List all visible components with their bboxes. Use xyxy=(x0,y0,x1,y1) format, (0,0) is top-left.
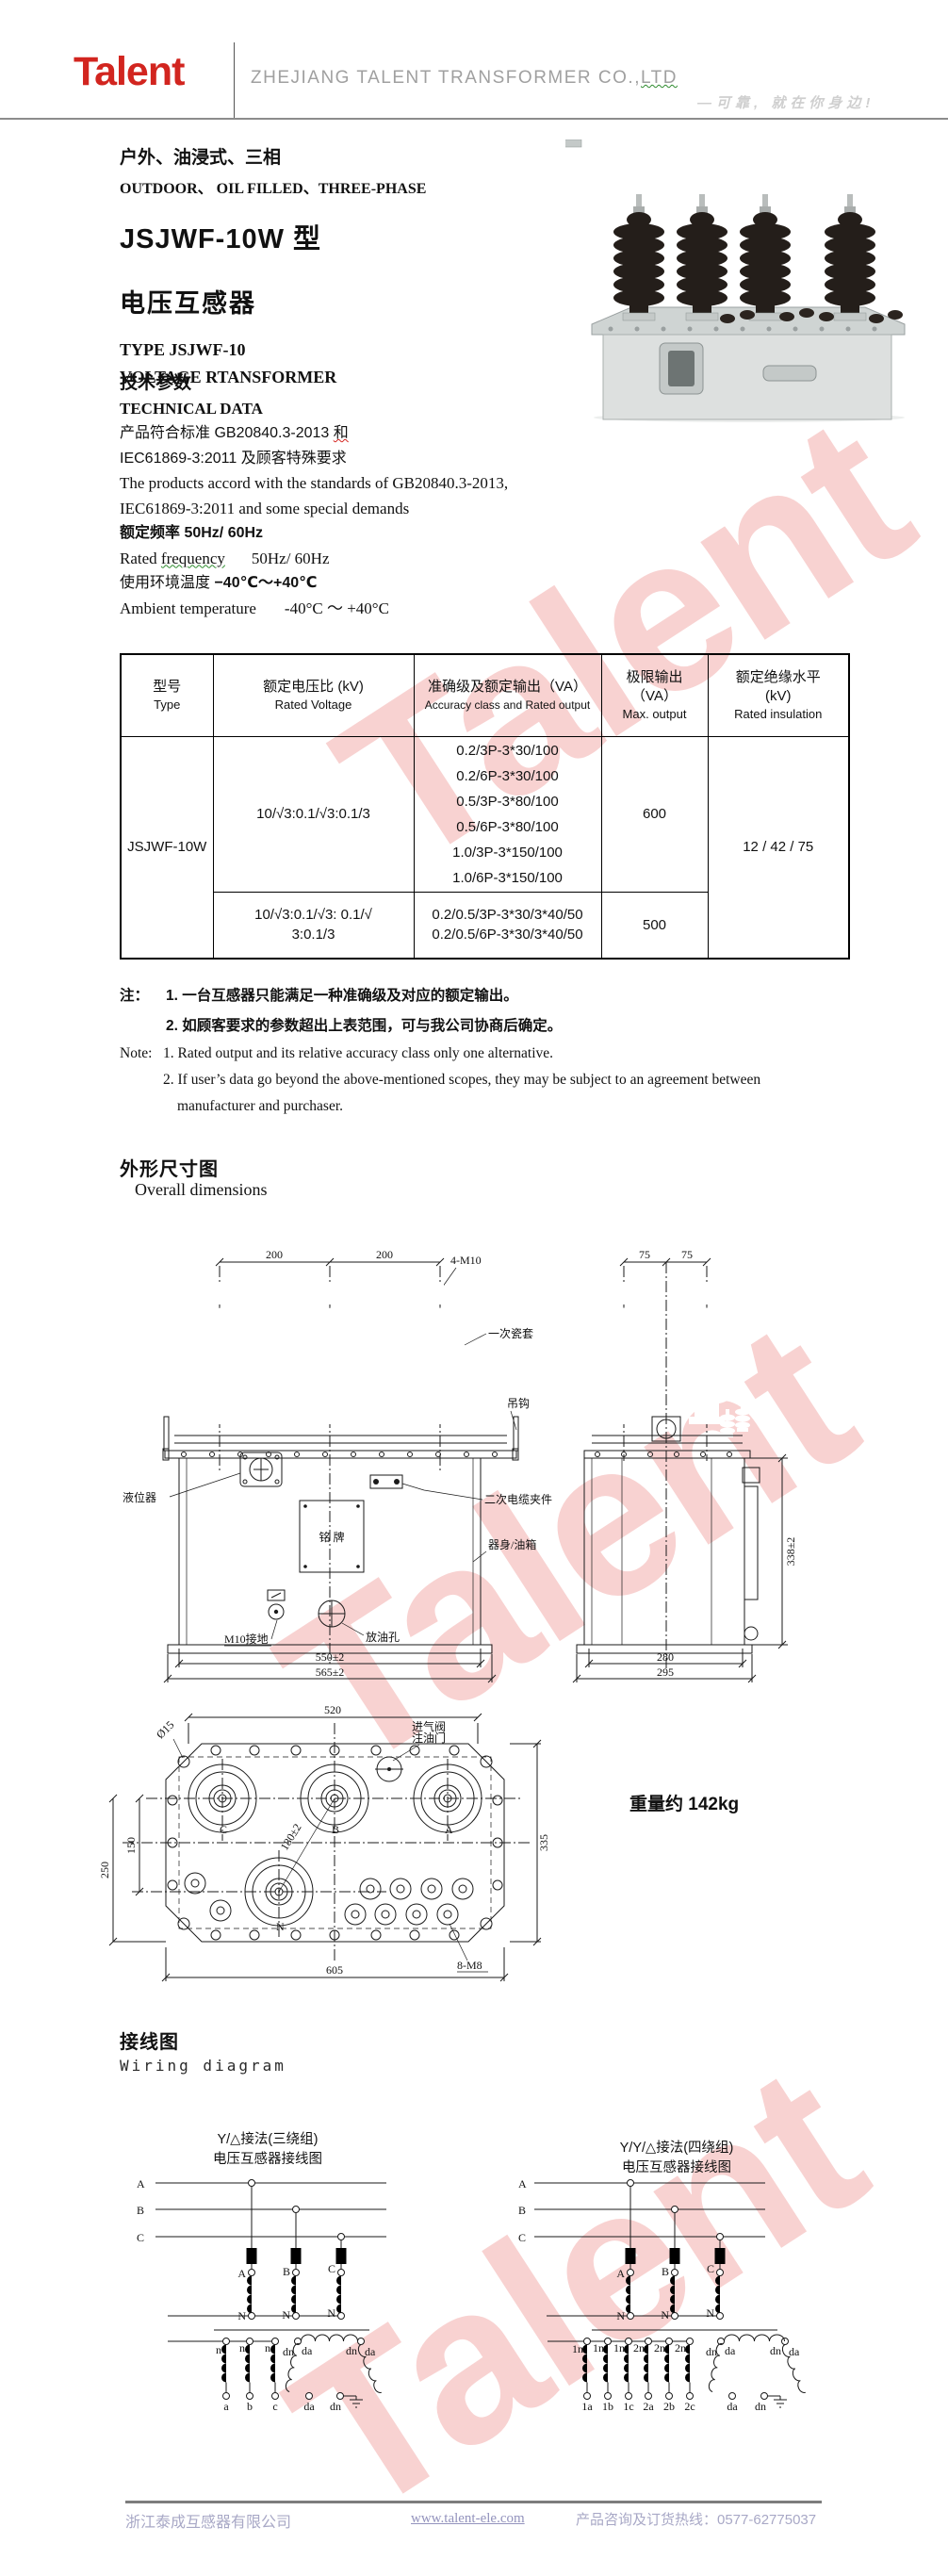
dim-4-M10: 4-M10 xyxy=(450,1254,482,1267)
delta-da-bottom: da xyxy=(303,2400,315,2413)
note-cn-1: 1. 一台互感器只能满足一种准确级及对应的额定输出。 xyxy=(166,987,518,1006)
title-en: OUTDOOR、 OIL FILLED、THREE-PHASE xyxy=(120,175,426,198)
dim-8-M8: 8-M8 xyxy=(457,1959,482,1972)
delta-da-2: da xyxy=(789,2345,800,2358)
terminal-letter-A: A xyxy=(445,1823,453,1836)
prim-term-B: B xyxy=(662,2265,669,2278)
sec-2n-2: 2n xyxy=(654,2341,665,2354)
top-view-drawing: C B A N 进气阀 注油门 Ø15 520 xyxy=(94,1704,613,1989)
sec-n-2: n xyxy=(239,2341,245,2354)
sec-b: b xyxy=(247,2400,253,2413)
tech-temp-cn: 使用环境温度 −40℃～+40℃ xyxy=(120,571,508,597)
std-cn1-tail: 和 xyxy=(334,425,349,441)
delta-dn-2: dn xyxy=(770,2344,781,2357)
side-secondary-insulators xyxy=(720,1403,750,1437)
technical-data-section: 技术参数 TECHNICAL DATA 产品符合标准 GB20840.3-201… xyxy=(120,371,508,621)
sec-1n-1: 1n xyxy=(572,2342,583,2355)
photo-tank xyxy=(592,307,905,422)
bus-label-B: B xyxy=(137,2204,144,2217)
sec-2c: 2c xyxy=(684,2400,695,2413)
note-en-2: 2. If user’s data go beyond the above-me… xyxy=(163,1071,760,1090)
left-wiring-title-1: Y/△接法(三绕组) xyxy=(185,2130,351,2150)
leader-tank xyxy=(473,1551,486,1562)
tech-temp-en: Ambient temperature-40°C ～ +40°C xyxy=(120,597,508,622)
company-name-main: ZHEJIANG TALENT TRANSFORMER CO., xyxy=(251,68,641,88)
leader-valve xyxy=(393,1745,419,1761)
sec-n-1: n xyxy=(216,2343,221,2356)
wiring-heading-en: Wiring diagram xyxy=(120,2057,286,2075)
delta-dn-2: dn xyxy=(346,2344,357,2357)
nameplate-label: 铭 牌 xyxy=(319,1530,344,1544)
footer-company: 浙江泰成互感器有限公司 xyxy=(125,2509,291,2532)
label-drain: 放油孔 xyxy=(366,1630,400,1644)
dim-phi15: Ø15 xyxy=(154,1718,177,1742)
output-line: 0.2/0.5/3P-3*30/3*40/50 xyxy=(415,905,601,925)
left-wiring-title: Y/△接法(三绕组) 电压互感器接线图 xyxy=(185,2130,351,2170)
header-max-cn: 极限输出 xyxy=(602,668,708,687)
dim-75-left: 75 xyxy=(639,1248,650,1261)
side-dim-338 xyxy=(750,1454,788,1649)
primary-branches xyxy=(539,2180,726,2334)
leader-ground xyxy=(271,1620,277,1639)
dim-550: 550±2 xyxy=(316,1650,345,1664)
dim-605: 605 xyxy=(326,1963,343,1977)
sec-1n-2: 1n xyxy=(593,2341,604,2354)
temp-en-label: Ambient temperature xyxy=(120,599,256,617)
header-divider xyxy=(234,42,235,118)
temp-cn-label: 使用环境温度 xyxy=(120,575,214,591)
std-cn1-text: 产品符合标准 GB20840.3-2013 xyxy=(120,425,334,441)
bus-label-B: B xyxy=(518,2204,526,2217)
delta-dn-1: dn xyxy=(283,2345,294,2358)
dim-338: 338±2 xyxy=(784,1537,797,1567)
cell-outputs-2: 0.2/0.5/3P-3*30/3*40/50 0.2/0.5/6P-3*30/… xyxy=(414,892,601,959)
weight-note: 重量约 142kg xyxy=(629,1790,739,1815)
header-insulation-cn: 额定绝缘水平 xyxy=(709,668,849,687)
note-en-label: Note: xyxy=(120,1044,152,1063)
cell-max-2: 500 xyxy=(601,892,708,959)
leader-drain xyxy=(342,1623,364,1635)
side-tank xyxy=(577,1458,760,1653)
wiring-diagram-four-winding: A B C A B C N N N xyxy=(514,2173,815,2427)
front-view-drawing: 200 200 4-M10 xyxy=(85,1249,561,1687)
spec-table: 型号 Type 额定电压比 (kV) Rated Voltage 准确级及额定输… xyxy=(120,653,850,960)
output-line: 0.2/0.5/6P-3*30/3*40/50 xyxy=(415,925,601,944)
n-term-1: N xyxy=(237,2309,246,2322)
delta-da-1: da xyxy=(725,2344,736,2357)
delta-da-2: da xyxy=(365,2345,376,2358)
sec-1n-3: 1n xyxy=(613,2341,625,2354)
header-rated-voltage: 额定电压比 (kV) Rated Voltage xyxy=(213,654,414,736)
prim-term-C: C xyxy=(707,2262,714,2275)
output-line: 0.2/3P-3*30/100 xyxy=(415,738,601,763)
cell-outputs-1: 0.2/3P-3*30/100 0.2/6P-3*30/100 0.5/3P-3… xyxy=(414,736,601,892)
voltage-line: 3:0.1/3 xyxy=(214,925,414,944)
tech-frequency-en: Rated frequency50Hz/ 60Hz xyxy=(120,547,508,572)
title-block: 户外、油浸式、三相 OUTDOOR、 OIL FILLED、THREE-PHAS… xyxy=(120,143,426,387)
cell-voltage-2: 10/√3:0.1/√3: 0.1/√ 3:0.1/3 xyxy=(213,892,414,959)
tech-standard-en-1: The products accord with the standards o… xyxy=(120,471,508,497)
talent-logo: Talent xyxy=(74,49,184,95)
product-photo xyxy=(565,139,933,422)
top-centerlines xyxy=(123,1723,532,1961)
company-name-tail: LTD xyxy=(641,68,678,88)
sec-1c: 1c xyxy=(623,2400,633,2413)
header-max-cn2: （VA） xyxy=(602,687,708,706)
sec-n-3: n xyxy=(265,2341,270,2354)
header-rule xyxy=(0,118,948,120)
front-dim-200 xyxy=(216,1258,444,1266)
cell-voltage-1: 10/√3:0.1/√3:0.1/3 xyxy=(213,736,414,892)
label-oil-fill: 注油门 xyxy=(412,1731,446,1745)
prim-term-A: A xyxy=(237,2267,246,2280)
header-insulation-cn2: (kV) xyxy=(709,687,849,706)
header-insulation-en: Rated insulation xyxy=(709,706,849,723)
label-cable-clamp: 二次电缆夹件 xyxy=(484,1493,552,1506)
label-level-indicator: 液位器 xyxy=(123,1490,156,1504)
label-tank: 器身/油箱 xyxy=(488,1537,536,1551)
n-term-3: N xyxy=(706,2306,714,2320)
header-voltage-en: Rated Voltage xyxy=(214,697,414,714)
bus-lines xyxy=(155,2183,386,2237)
n-term-1: N xyxy=(616,2309,625,2322)
datasheet-page: Talent Talent Talent Talent ZHEJIANG TAL… xyxy=(0,0,948,2576)
dim-200-right: 200 xyxy=(376,1248,393,1261)
side-view-drawing: 75 75 338±2 xyxy=(565,1249,942,1687)
delta-dn-bottom: dn xyxy=(755,2400,766,2413)
table-header-row: 型号 Type 额定电压比 (kV) Rated Voltage 准确级及额定输… xyxy=(121,654,849,736)
n-term-3: N xyxy=(327,2306,335,2320)
dim-200-left: 200 xyxy=(266,1248,283,1261)
sec-1b: 1b xyxy=(602,2400,613,2413)
voltage-line: 10/√3:0.1/√3: 0.1/√ xyxy=(214,905,414,925)
delta-dn-bottom: dn xyxy=(330,2400,341,2413)
dim-280: 280 xyxy=(657,1650,674,1664)
footer-website-link[interactable]: www.talent-ele.com xyxy=(411,2511,525,2527)
header-max-output: 极限输出 （VA） Max. output xyxy=(601,654,708,736)
sec-a: a xyxy=(223,2400,229,2413)
bus-label-C: C xyxy=(137,2231,144,2244)
note-cn-label: 注： xyxy=(120,987,149,1006)
terminal-letter-N: N xyxy=(276,1920,285,1933)
leader-phi15 xyxy=(173,1739,183,1758)
dim-75-right: 75 xyxy=(681,1248,693,1261)
cable-clamp xyxy=(370,1475,402,1488)
dim-295: 295 xyxy=(657,1665,674,1679)
footer-rule xyxy=(125,2501,822,2503)
primary-branches xyxy=(160,2180,347,2334)
sec-2n-1: 2n xyxy=(633,2341,645,2354)
tech-standard-cn-2: IEC61869-3:2011 及顾客特殊要求 xyxy=(120,447,508,472)
prim-term-C: C xyxy=(328,2262,335,2275)
header-insulation: 额定绝缘水平 (kV) Rated insulation xyxy=(708,654,849,736)
tech-heading-en: TECHNICAL DATA xyxy=(120,397,508,422)
temp-cn-value: −40℃～+40℃ xyxy=(214,575,317,591)
prim-term-B: B xyxy=(283,2265,290,2278)
sec-1a: 1a xyxy=(581,2400,593,2413)
leader-bushing xyxy=(465,1334,486,1345)
temp-en-value: -40°C ～ +40°C xyxy=(285,599,389,617)
bus-label-C: C xyxy=(518,2231,526,2244)
type-en: TYPE JSJWF-10 xyxy=(120,340,426,360)
model-name: JSJWF-10W 型 xyxy=(120,217,426,256)
leader-clamp xyxy=(402,1484,482,1500)
header-accuracy-en: Accuracy class and Rated output xyxy=(415,697,601,714)
label-m10-ground: M10接地 xyxy=(224,1632,269,1646)
dim-180: 180±2 xyxy=(278,1821,304,1852)
title-cn: 户外、油浸式、三相 xyxy=(120,143,426,169)
cell-type: JSJWF-10W xyxy=(121,736,213,959)
header-type: 型号 Type xyxy=(121,654,213,736)
delta-da-bottom: da xyxy=(727,2400,738,2413)
dimensions-heading-en: Overall dimensions xyxy=(135,1180,267,1200)
front-bushings xyxy=(199,1283,464,1424)
side-bushings xyxy=(601,1283,729,1424)
sec-2n-3: 2n xyxy=(675,2341,686,2354)
header-accuracy-cn: 准确级及额定输出（VA） xyxy=(415,678,601,697)
freq-en-label-b: frequency xyxy=(161,550,225,567)
note-en-1: 1. Rated output and its relative accurac… xyxy=(163,1044,553,1063)
bus-label-A: A xyxy=(137,2177,145,2190)
output-line: 1.0/3P-3*150/100 xyxy=(415,840,601,865)
tech-standard-en-2: IEC61869-3:2011 and some special demands xyxy=(120,497,508,522)
dim-565: 565±2 xyxy=(316,1665,345,1679)
tech-frequency-cn: 额定频率 50Hz/ 60Hz xyxy=(120,521,508,547)
n-term-2: N xyxy=(282,2308,290,2322)
bus-lines xyxy=(534,2183,765,2237)
terminal-letter-B: B xyxy=(332,1823,339,1836)
dim-150: 150 xyxy=(124,1837,138,1854)
product-name-cn: 电压互感器 xyxy=(120,283,426,320)
wiring-heading-cn: 接线图 xyxy=(120,2026,179,2054)
oil-valve xyxy=(375,1757,403,1781)
output-line: 0.5/3P-3*80/100 xyxy=(415,789,601,814)
output-line: 1.0/6P-3*150/100 xyxy=(415,865,601,891)
output-line: 0.2/6P-3*30/100 xyxy=(415,763,601,789)
note-en-3: manufacturer and purchaser. xyxy=(177,1097,343,1116)
table-row: JSJWF-10W 10/√3:0.1/√3:0.1/3 0.2/3P-3*30… xyxy=(121,736,849,892)
sec-2b: 2b xyxy=(663,2400,675,2413)
dim-520: 520 xyxy=(324,1703,341,1716)
header-voltage-cn: 额定电压比 (kV) xyxy=(214,678,414,697)
delta-da-1: da xyxy=(302,2344,313,2357)
header-tagline: —可靠, 就在你身边! xyxy=(697,92,874,112)
level-indicator xyxy=(240,1452,282,1486)
drain-hole xyxy=(319,1600,345,1627)
dim-335: 335 xyxy=(537,1834,550,1851)
terminal-letter-C: C xyxy=(220,1823,227,1836)
cell-insulation: 12 / 42 / 75 xyxy=(708,736,849,959)
ground-bolt xyxy=(268,1590,285,1619)
freq-en-label-a: Rated xyxy=(120,550,161,567)
footer-hotline: 产品咨询及订货热线：0577-62775037 xyxy=(576,2509,816,2529)
n-term-2: N xyxy=(661,2308,669,2322)
freq-en-value: 50Hz/ 60Hz xyxy=(252,550,330,567)
left-wiring-title-2: 电压互感器接线图 xyxy=(185,2150,351,2170)
dim-250: 250 xyxy=(98,1862,111,1879)
header-accuracy: 准确级及额定输出（VA） Accuracy class and Rated ou… xyxy=(414,654,601,736)
prim-term-A: A xyxy=(616,2267,625,2280)
top-dim-250 xyxy=(109,1795,166,1945)
top-secondary-terminals xyxy=(185,1873,473,1925)
header-max-en: Max. output xyxy=(602,706,708,723)
photo-bushings xyxy=(565,139,903,323)
bus-label-A: A xyxy=(518,2177,527,2190)
delta-dn-1: dn xyxy=(706,2345,717,2358)
dimensions-heading-cn: 外形尺寸图 xyxy=(120,1154,219,1181)
sec-2a: 2a xyxy=(643,2400,654,2413)
cell-max-1: 600 xyxy=(601,736,708,892)
header-type-cn: 型号 xyxy=(122,678,213,697)
company-name: ZHEJIANG TALENT TRANSFORMER CO.,LTD xyxy=(251,68,678,89)
label-hook: 吊钩 xyxy=(507,1397,530,1410)
sec-c: c xyxy=(272,2400,277,2413)
right-wiring-title-1: Y/Y/△接法(四绕组) xyxy=(594,2139,760,2158)
tech-standard-cn-1: 产品符合标准 GB20840.3-2013 和 xyxy=(120,421,508,447)
wiring-diagram-three-winding: A B C A B C N N N xyxy=(127,2173,457,2427)
side-dim-75 xyxy=(620,1258,711,1266)
label-primary-bushing: 一次瓷套 xyxy=(488,1327,533,1340)
output-line: 0.5/6P-3*80/100 xyxy=(415,814,601,840)
header-type-en: Type xyxy=(122,697,213,714)
note-cn-2: 2. 如顾客要求的参数超出上表范围，可与我公司协商后确定。 xyxy=(166,1017,562,1036)
leader-level xyxy=(170,1473,240,1497)
tech-heading-cn: 技术参数 xyxy=(120,371,508,397)
